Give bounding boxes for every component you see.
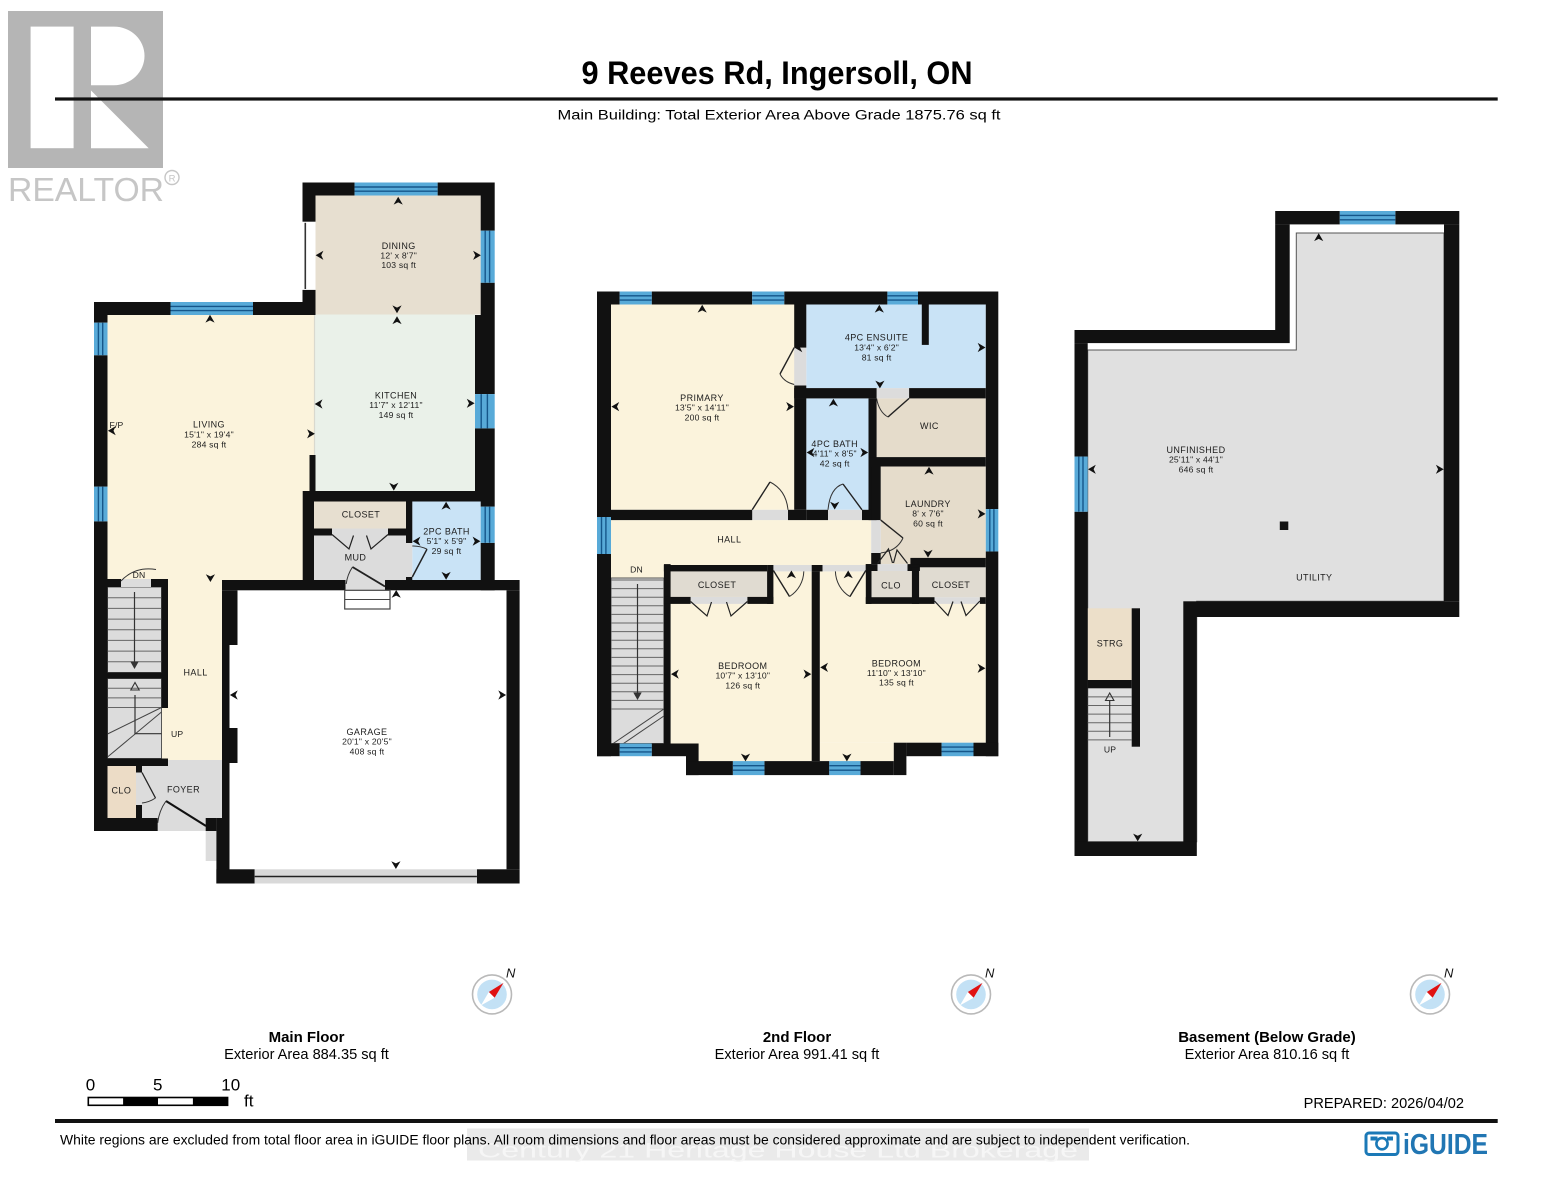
svg-text:BEDROOM: BEDROOM [872, 658, 921, 668]
svg-text:408 sq ft: 408 sq ft [350, 746, 385, 756]
svg-text:UP: UP [171, 729, 183, 739]
svg-text:60 sq ft: 60 sq ft [913, 518, 943, 528]
svg-text:284 sq ft: 284 sq ft [192, 439, 227, 449]
svg-text:MUD: MUD [345, 553, 367, 563]
svg-text:4PC ENSUITE: 4PC ENSUITE [845, 333, 908, 343]
svg-text:13'5" x 14'11": 13'5" x 14'11" [675, 403, 729, 413]
svg-text:UNFINISHED: UNFINISHED [1166, 445, 1225, 455]
svg-text:4'11" x 8'5": 4'11" x 8'5" [813, 449, 857, 459]
svg-text:CLOSET: CLOSET [698, 580, 737, 590]
svg-text:11'10" x 13'10": 11'10" x 13'10" [867, 668, 926, 678]
svg-text:Exterior Area 884.35 sq ft: Exterior Area 884.35 sq ft [224, 1047, 389, 1063]
svg-text:646 sq ft: 646 sq ft [1179, 464, 1214, 474]
svg-text:Exterior Area 810.16 sq ft: Exterior Area 810.16 sq ft [1185, 1047, 1350, 1063]
svg-text:Basement (Below Grade): Basement (Below Grade) [1178, 1029, 1356, 1046]
svg-text:103 sq ft: 103 sq ft [381, 260, 416, 270]
svg-text:DN: DN [133, 570, 146, 580]
svg-text:CLOSET: CLOSET [932, 580, 971, 590]
svg-text:200 sq ft: 200 sq ft [685, 412, 720, 422]
svg-text:UTILITY: UTILITY [1296, 572, 1332, 582]
svg-text:9 Reeves Rd, Ingersoll, ON: 9 Reeves Rd, Ingersoll, ON [582, 55, 973, 91]
svg-text:UP: UP [1104, 744, 1116, 754]
svg-text:126 sq ft: 126 sq ft [725, 680, 760, 690]
svg-text:R: R [169, 174, 176, 185]
svg-text:WIC: WIC [920, 421, 939, 431]
svg-text:135 sq ft: 135 sq ft [879, 678, 914, 688]
svg-text:20'1" x 20'5": 20'1" x 20'5" [342, 737, 392, 747]
svg-text:42 sq ft: 42 sq ft [820, 458, 850, 468]
svg-text:Main Floor: Main Floor [269, 1029, 345, 1046]
svg-text:5'1" x 5'9": 5'1" x 5'9" [427, 536, 467, 546]
svg-text:0: 0 [86, 1076, 95, 1095]
svg-text:KITCHEN: KITCHEN [375, 391, 417, 401]
svg-text:CLO: CLO [112, 786, 132, 796]
svg-text:10'7" x 13'10": 10'7" x 13'10" [715, 671, 770, 681]
svg-text:15'1" x 19'4": 15'1" x 19'4" [184, 430, 234, 440]
svg-text:N: N [1444, 965, 1454, 980]
svg-text:HALL: HALL [184, 668, 208, 678]
svg-text:Main Building: Total Exterior: Main Building: Total Exterior Area Above… [558, 108, 1001, 124]
svg-text:PREPARED: 2026/04/02: PREPARED: 2026/04/02 [1304, 1096, 1464, 1112]
svg-text:11'7" x 12'11": 11'7" x 12'11" [369, 400, 422, 410]
svg-text:CLO: CLO [881, 581, 901, 591]
svg-text:2PC BATH: 2PC BATH [423, 527, 470, 537]
svg-text:12' x 8'7": 12' x 8'7" [380, 251, 417, 261]
svg-text:LAUNDRY: LAUNDRY [905, 499, 951, 509]
svg-text:DN: DN [630, 565, 643, 575]
svg-text:FOYER: FOYER [167, 785, 200, 795]
svg-text:BEDROOM: BEDROOM [718, 661, 767, 671]
svg-text:8' x 7'6": 8' x 7'6" [912, 509, 944, 519]
svg-text:149 sq ft: 149 sq ft [379, 410, 414, 420]
svg-text:White regions are excluded fro: White regions are excluded from total fl… [60, 1133, 1190, 1149]
svg-text:STRG: STRG [1097, 638, 1124, 648]
svg-text:HALL: HALL [717, 535, 741, 545]
svg-text:PRIMARY: PRIMARY [680, 393, 724, 403]
svg-text:iGUIDE: iGUIDE [1403, 1129, 1488, 1161]
svg-text:10: 10 [221, 1076, 240, 1095]
svg-text:2nd Floor: 2nd Floor [763, 1029, 831, 1046]
svg-text:N: N [985, 965, 995, 980]
svg-text:CLOSET: CLOSET [342, 510, 381, 520]
svg-text:Exterior Area 991.41 sq ft: Exterior Area 991.41 sq ft [715, 1047, 880, 1063]
svg-text:REALTOR: REALTOR [8, 171, 164, 208]
svg-text:ft: ft [244, 1092, 254, 1111]
svg-text:13'4" x 6'2": 13'4" x 6'2" [854, 343, 899, 353]
svg-text:4PC BATH: 4PC BATH [811, 439, 858, 449]
svg-text:LIVING: LIVING [193, 420, 225, 430]
svg-text:29 sq ft: 29 sq ft [432, 546, 462, 556]
svg-text:N: N [506, 965, 516, 980]
svg-text:F/P: F/P [110, 420, 124, 430]
svg-text:DINING: DINING [382, 241, 416, 251]
svg-text:25'11" x 44'1": 25'11" x 44'1" [1169, 455, 1223, 465]
svg-text:81 sq ft: 81 sq ft [862, 353, 892, 363]
svg-text:5: 5 [153, 1076, 162, 1095]
svg-text:GARAGE: GARAGE [347, 727, 388, 737]
